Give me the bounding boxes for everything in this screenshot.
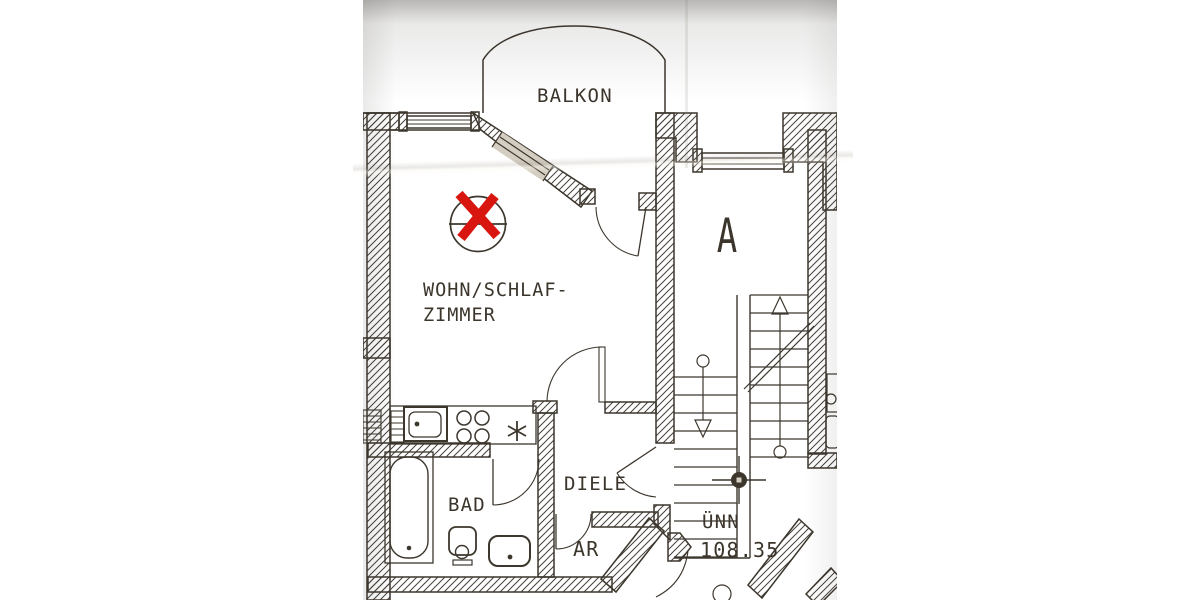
toilet xyxy=(449,527,476,565)
wall-diagonal-left xyxy=(601,518,664,592)
wall-kitchen-bath xyxy=(368,443,490,457)
stair-window-jamb xyxy=(693,149,702,172)
wall-hall-top-stub xyxy=(605,402,656,413)
staircase xyxy=(674,295,814,558)
storage-label: AR xyxy=(573,537,599,561)
floorplan-svg: BALKON WOHN/SCHLAF- ZIMMER BAD DIELE AR … xyxy=(363,0,837,600)
stair-arrow-down xyxy=(695,355,711,437)
wall-bath-right xyxy=(538,413,554,577)
red-x-annotation xyxy=(459,194,497,238)
benchmark-marker xyxy=(712,456,766,504)
door-jamb-left xyxy=(580,189,595,204)
wall-right-stub xyxy=(808,453,837,468)
letterbox-right xyxy=(837,0,1200,600)
level-name-label: ÜNN xyxy=(702,510,740,533)
wall-top-left xyxy=(363,113,399,130)
letterbox-left xyxy=(0,0,363,600)
hall-label: DIELE xyxy=(564,473,627,495)
floorplan-photo: BALKON WOHN/SCHLAF- ZIMMER BAD DIELE AR … xyxy=(363,0,837,600)
washbasin xyxy=(489,536,530,566)
balcony-door xyxy=(596,207,646,256)
balcony-label: BALKON xyxy=(537,85,613,107)
window-jamb xyxy=(399,112,407,131)
chamfer-window xyxy=(492,132,553,181)
door-jamb-right xyxy=(639,193,656,210)
labels: BALKON WOHN/SCHLAF- ZIMMER BAD DIELE AR … xyxy=(423,85,779,562)
kitchen-sink xyxy=(404,407,447,441)
asterisk-symbol xyxy=(508,421,526,441)
stair-window-jamb xyxy=(784,149,793,172)
cooktop xyxy=(457,411,489,443)
level-value-label: 108.35 xyxy=(700,538,779,562)
neighbor-fixture-right xyxy=(826,374,837,448)
top-window xyxy=(407,116,471,128)
stair-arrow-up xyxy=(772,297,788,458)
stair-treads-right xyxy=(750,295,808,457)
wall-stairwell-left xyxy=(656,113,674,443)
staircase-marker-label: A xyxy=(717,208,737,263)
wall-left-stub xyxy=(363,338,390,358)
bathtub xyxy=(385,452,433,563)
wall-bottom-right-band xyxy=(806,568,837,600)
stair-window xyxy=(702,153,784,169)
screenshot-canvas: BALKON WOHN/SCHLAF- ZIMMER BAD DIELE AR … xyxy=(0,0,1200,600)
bath-label: BAD xyxy=(448,494,486,516)
bath-door xyxy=(493,459,539,505)
lobby-column xyxy=(713,585,731,600)
living-room-label-line2: ZIMMER xyxy=(423,305,496,326)
wall-bottom xyxy=(368,577,612,592)
walls xyxy=(363,112,837,600)
stair-break-line xyxy=(744,323,814,392)
living-hall-door xyxy=(547,347,605,402)
living-room-label-line1: WOHN/SCHLAF- xyxy=(423,280,569,301)
